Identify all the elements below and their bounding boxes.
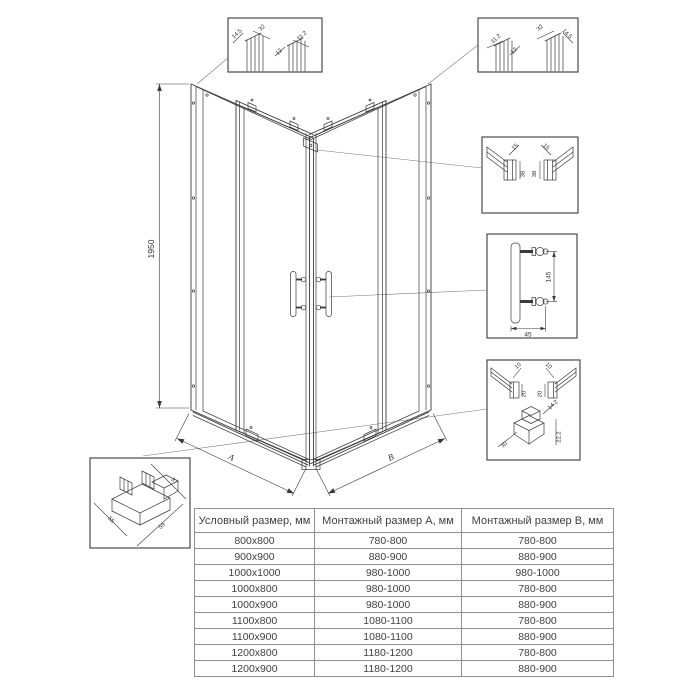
table-row: 1100x9001080-1100880-900 bbox=[195, 629, 614, 645]
table-cell: 1000x1000 bbox=[195, 565, 315, 581]
dim-label: 38 bbox=[532, 171, 538, 177]
table-cell: 1100x800 bbox=[195, 613, 315, 629]
table-row: 1200x9001180-1200880-900 bbox=[195, 661, 614, 677]
detail-box-bottom-corner: 10 20 10 20 14.2 22.2 30 bbox=[487, 360, 580, 460]
table-cell: 780-800 bbox=[462, 533, 614, 549]
table-cell: 980-1000 bbox=[462, 565, 614, 581]
table-row: 800x800780-800780-800 bbox=[195, 533, 614, 549]
size-table-body: 800x800780-800780-800900x900880-900880-9… bbox=[195, 533, 614, 677]
left-door-handle bbox=[291, 272, 306, 317]
column-header-mount-size-b: Монтажный размер В, мм bbox=[462, 509, 614, 533]
dim-label: 20 bbox=[538, 391, 544, 397]
table-cell: 1080-1100 bbox=[315, 613, 462, 629]
table-cell: 800x800 bbox=[195, 533, 315, 549]
table-cell: 1180-1200 bbox=[315, 661, 462, 677]
leader-lines bbox=[143, 45, 487, 456]
enclosure-corner-post bbox=[302, 137, 320, 470]
table-cell: 1200x800 bbox=[195, 645, 315, 661]
dim-label: 20 bbox=[522, 391, 528, 397]
table-row: 1000x1000980-1000980-1000 bbox=[195, 565, 614, 581]
table-cell: 880-900 bbox=[462, 549, 614, 565]
detail-box-top-right-profile: 31.2 12 32 14.5 bbox=[478, 18, 578, 72]
detail-box-handle: 145 45 bbox=[487, 234, 577, 339]
table-cell: 900x900 bbox=[195, 549, 315, 565]
dimension-a-label: A bbox=[226, 451, 237, 463]
table-cell: 1080-1100 bbox=[315, 629, 462, 645]
size-table-header-row: Условный размер, мм Монтажный размер А, … bbox=[195, 509, 614, 533]
column-header-mount-size-a: Монтажный размер А, мм bbox=[315, 509, 462, 533]
table-cell: 780-800 bbox=[462, 613, 614, 629]
table-cell: 980-1000 bbox=[315, 597, 462, 613]
enclosure-left-door bbox=[236, 99, 313, 461]
table-cell: 1180-1200 bbox=[315, 645, 462, 661]
dimension-height: 1950 bbox=[146, 84, 189, 408]
table-row: 1000x900980-1000880-900 bbox=[195, 597, 614, 613]
right-door-handle bbox=[316, 272, 331, 317]
enclosure-right-panel bbox=[311, 84, 431, 464]
column-header-nominal-size: Условный размер, мм bbox=[195, 509, 315, 533]
dimension-height-label: 1950 bbox=[146, 239, 156, 258]
enclosure-left-panel bbox=[191, 84, 311, 464]
table-cell: 880-900 bbox=[462, 629, 614, 645]
table-cell: 1000x900 bbox=[195, 597, 315, 613]
detail-box-corner-connector: 37 55 59 bbox=[90, 458, 190, 548]
dim-label: 145 bbox=[546, 271, 553, 282]
table-cell: 1100x900 bbox=[195, 629, 315, 645]
table-row: 1000x800980-1000780-800 bbox=[195, 581, 614, 597]
table-cell: 880-900 bbox=[462, 597, 614, 613]
table-cell: 780-800 bbox=[462, 581, 614, 597]
technical-drawing-sheet: 1950 A B 14.5 32 12 bbox=[0, 0, 700, 700]
table-row: 900x900880-900880-900 bbox=[195, 549, 614, 565]
dimension-b-label: B bbox=[386, 451, 396, 463]
table-row: 1200x8001180-1200780-800 bbox=[195, 645, 614, 661]
table-cell: 780-800 bbox=[462, 645, 614, 661]
dim-label: 22.2 bbox=[557, 431, 563, 442]
table-cell: 1000x800 bbox=[195, 581, 315, 597]
table-cell: 980-1000 bbox=[315, 565, 462, 581]
dim-label: 38 bbox=[521, 171, 527, 177]
table-cell: 980-1000 bbox=[315, 581, 462, 597]
detail-box-wall-profile: 15 38 38 15 bbox=[482, 137, 578, 213]
table-cell: 880-900 bbox=[462, 661, 614, 677]
table-row: 1100x8001080-1100780-800 bbox=[195, 613, 614, 629]
detail-box-top-left-profile: 14.5 32 12 31.2 bbox=[228, 18, 322, 72]
table-cell: 1200x900 bbox=[195, 661, 315, 677]
size-table: Условный размер, мм Монтажный размер А, … bbox=[194, 508, 614, 677]
dim-label: 45 bbox=[524, 332, 532, 339]
table-cell: 880-900 bbox=[315, 549, 462, 565]
table-cell: 780-800 bbox=[315, 533, 462, 549]
